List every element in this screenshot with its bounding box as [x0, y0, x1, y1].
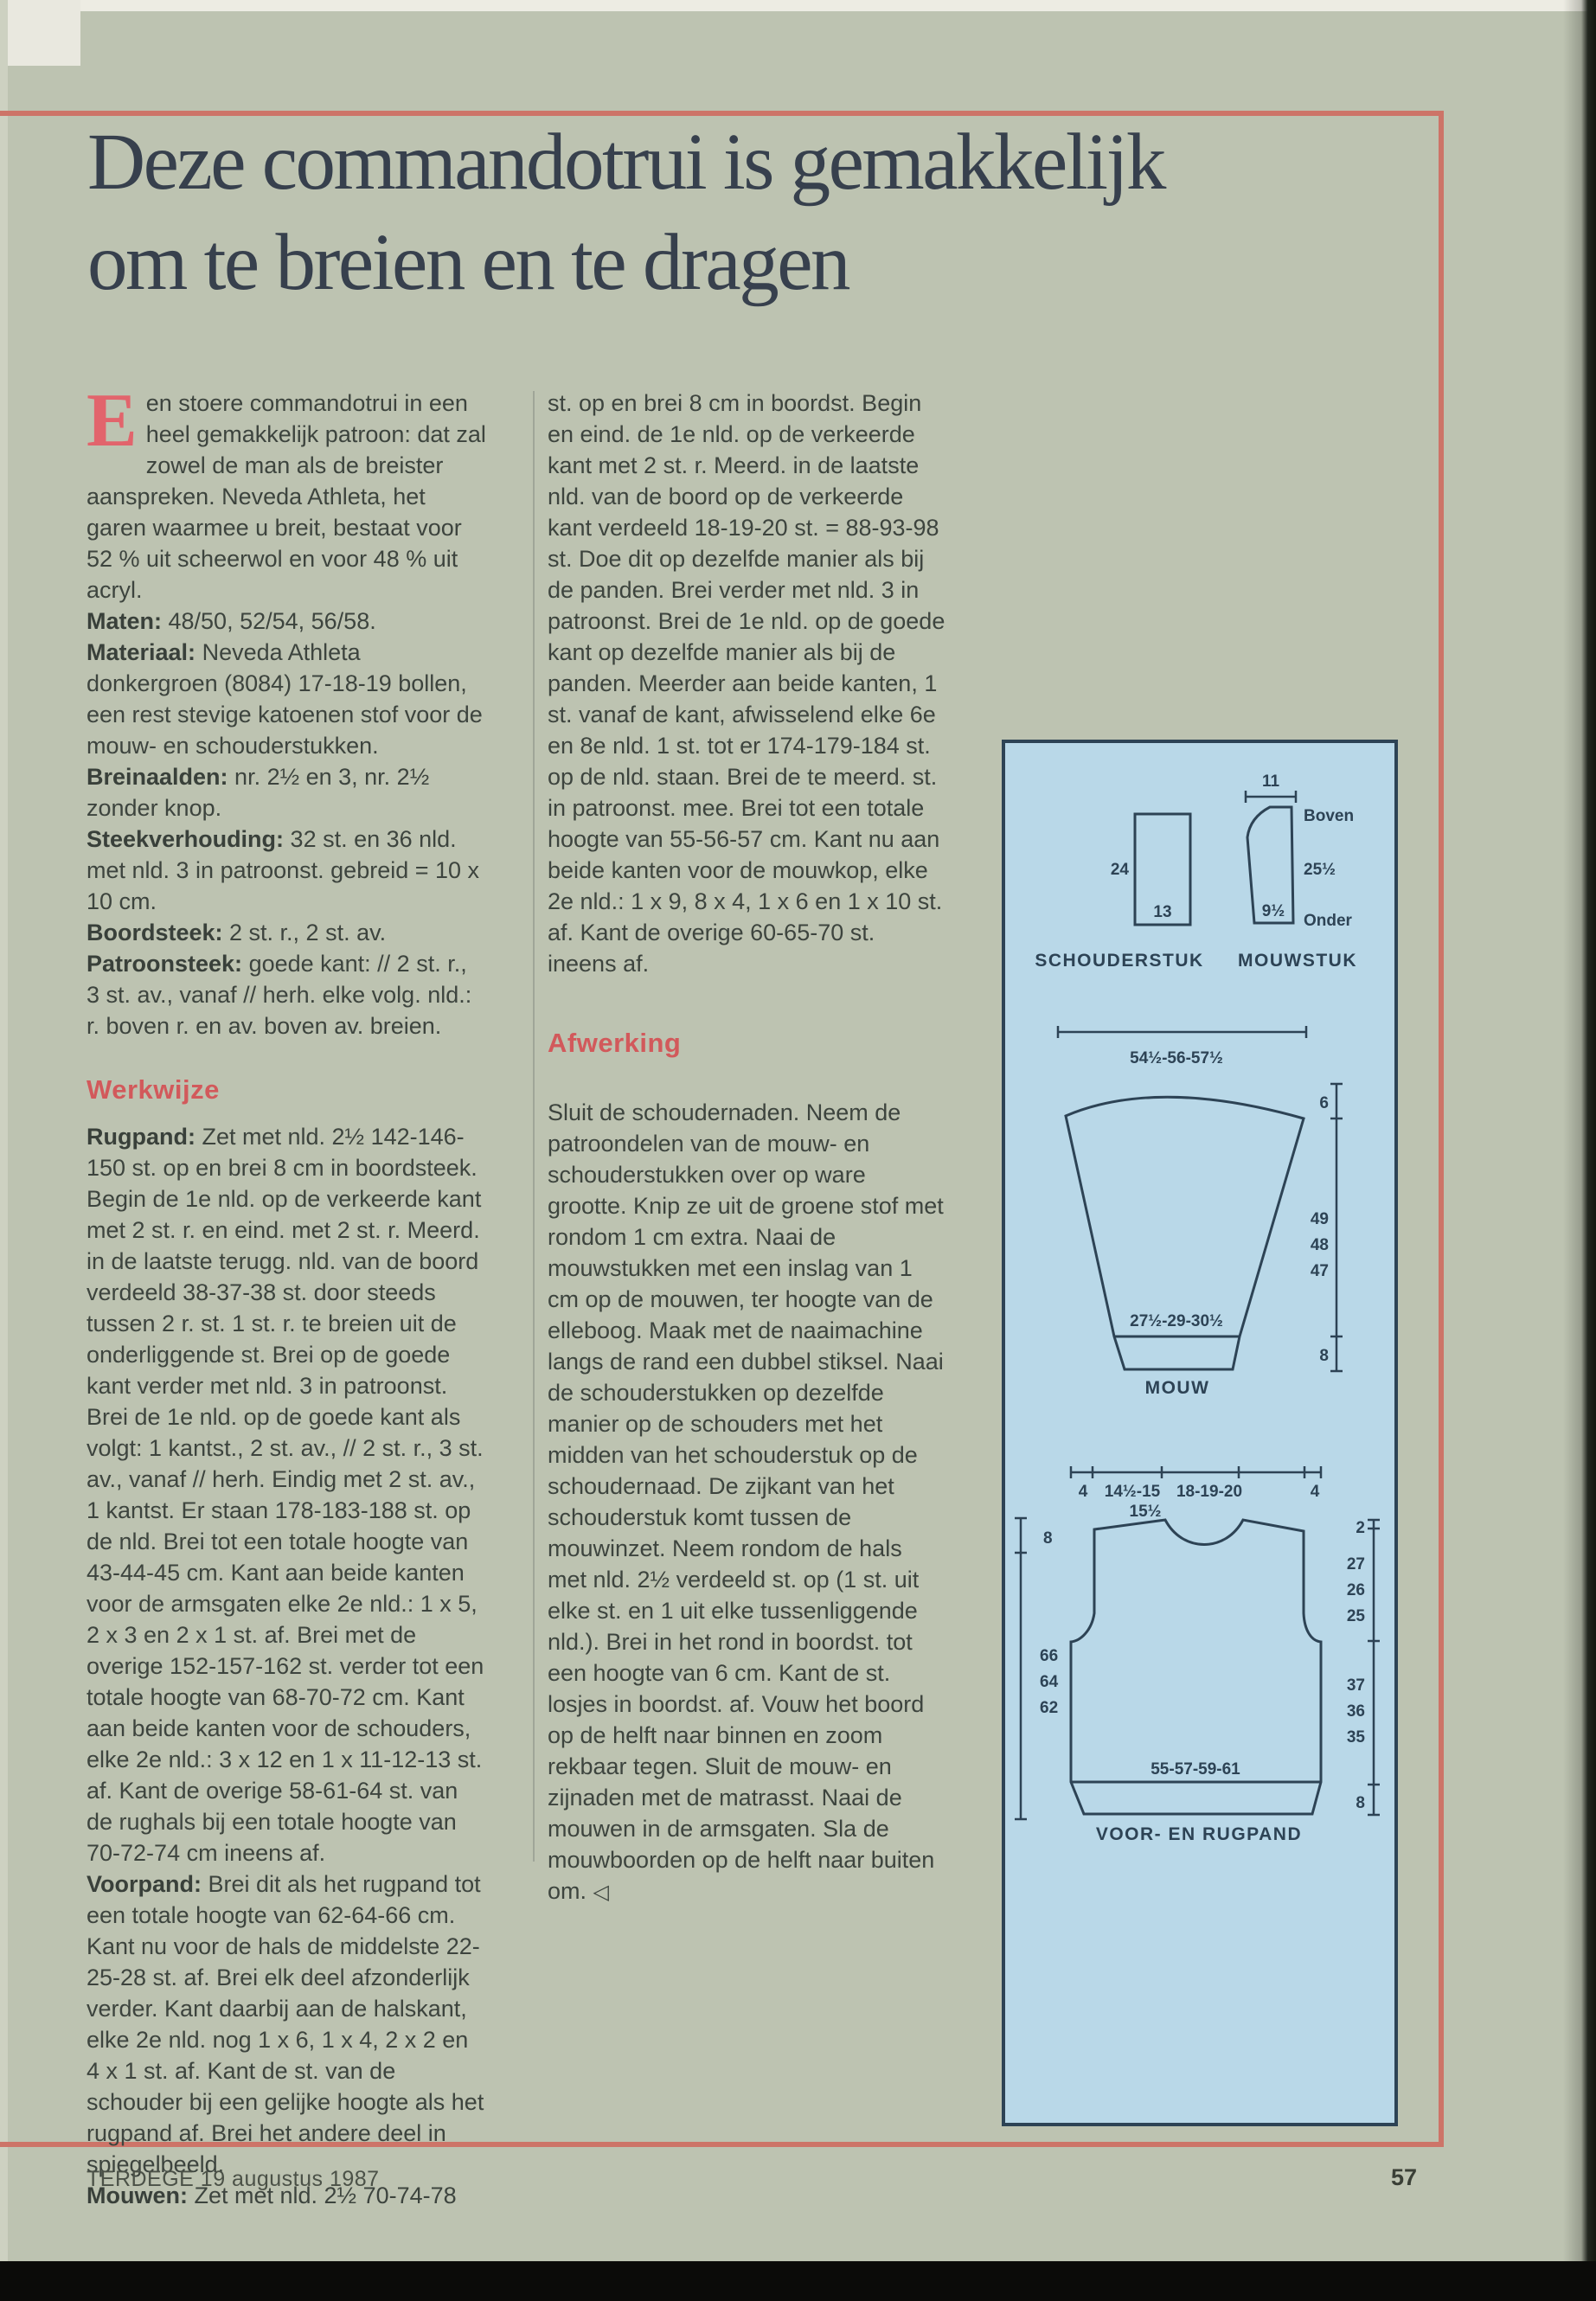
- page-title-line1: Deze commandotrui is gemakkelijk: [87, 112, 1385, 213]
- mouw-cuff-height-dim: 8: [1319, 1347, 1329, 1365]
- text-column-2: st. op en brei 8 cm in boordst. Begin en…: [548, 388, 947, 1908]
- spec-breinaalden: Breinaalden: nr. 2½ en 3, nr. 2½ zonder …: [87, 761, 486, 824]
- pand-rib-height-dim: 8: [1356, 1794, 1365, 1812]
- pand-body-height-dim-2: 64: [1040, 1673, 1059, 1691]
- pand-lower-height-dim-2: 36: [1347, 1702, 1365, 1721]
- mouwstuk-boven-label: Boven: [1304, 807, 1354, 825]
- pand-neck-dim: 18-19-20: [1176, 1483, 1242, 1501]
- pand-shoulder-dim-row2: 15½: [1130, 1503, 1162, 1521]
- mouw-length-dim-3: 47: [1311, 1262, 1329, 1280]
- pand-diagram: 4 14½-15 18-19-20 4 15½ 55-57-59-61 8 66…: [1015, 1466, 1380, 1844]
- scan-corner-top-left: [0, 0, 80, 66]
- spec-maten: Maten: 48/50, 52/54, 56/58.: [87, 606, 486, 637]
- para-voorpand: Voorpand: Brei dit als het rugpand tot e…: [87, 1868, 486, 2180]
- mouwstuk-onder-label: Onder: [1304, 912, 1353, 930]
- frame-rule-right: [1439, 111, 1444, 2147]
- pand-armhole-height-dim: 8: [1043, 1529, 1053, 1548]
- spec-steekverhouding: Steekverhouding: 32 st. en 36 nld. met n…: [87, 824, 486, 917]
- spec-patroonsteek: Patroonsteek: goede kant: // 2 st. r., 3…: [87, 948, 486, 1042]
- heading-werkwijze: Werkwijze: [87, 1074, 486, 1106]
- para-rugpand: Rugpand: Zet met nld. 2½ 142-146-150 st.…: [87, 1121, 486, 1868]
- page-number: 57: [1391, 2164, 1417, 2191]
- scan-edge-right: [1563, 0, 1596, 2301]
- intro-text: en stoere commandotrui in een heel gemak…: [87, 390, 486, 603]
- page-title: Deze commandotrui is gemakkelijk om te b…: [87, 112, 1385, 313]
- mouwstuk-diagram: 11 Boven 25½ 9½ Onder MOUWSTUK: [1238, 772, 1357, 971]
- pand-label: VOOR- EN RUGPAND: [1096, 1824, 1302, 1844]
- mouw-length-dim-1: 49: [1311, 1210, 1329, 1228]
- pand-body-height-dim-3: 62: [1040, 1699, 1058, 1717]
- mouwstuk-label: MOUWSTUK: [1238, 951, 1357, 971]
- pattern-diagram-panel: 24 13 SCHOUDERSTUK 11 Boven 25½ 9½ Onder…: [1002, 740, 1398, 2126]
- drop-cap: E: [87, 391, 138, 452]
- pand-shoulder-dim: 14½-15: [1105, 1483, 1161, 1501]
- pand-neck-depth-dim: 2: [1356, 1519, 1365, 1537]
- spec-label: Boordsteek:: [87, 920, 223, 945]
- pand-edge-left-dim: 4: [1079, 1483, 1088, 1501]
- pand-yoke-height-dim-2: 26: [1347, 1581, 1365, 1599]
- schouderstuk-bottom-dim: 13: [1153, 903, 1171, 921]
- spec-text: 48/50, 52/54, 56/58.: [162, 608, 376, 634]
- scan-edge-left: [0, 0, 8, 2261]
- column-divider: [533, 391, 535, 1862]
- magazine-page: Deze commandotrui is gemakkelijk om te b…: [0, 0, 1596, 2301]
- pand-lower-height-dim-3: 35: [1347, 1728, 1366, 1747]
- mouwstuk-side-dim: 25½: [1304, 861, 1336, 879]
- para-text: Zet met nld. 2½ 142-146-150 st. op en br…: [87, 1124, 484, 1866]
- para-afwerking: Sluit de schoudernaden. Neem de patroond…: [548, 1097, 947, 1908]
- para-mouwen-vervolg: st. op en brei 8 cm in boordst. Begin en…: [548, 388, 947, 979]
- spec-text: 2 st. r., 2 st. av.: [223, 920, 387, 945]
- para-label: Rugpand:: [87, 1124, 195, 1150]
- pand-yoke-height-dim-3: 25: [1347, 1607, 1366, 1625]
- scan-edge-bottom: [0, 2261, 1596, 2301]
- para-label: Voorpand:: [87, 1871, 202, 1897]
- mouw-label: MOUW: [1145, 1378, 1210, 1398]
- mouw-diagram: 54½-56-57½ 27½-29-30½ 6 49 48 47 8 MOUW: [1058, 1026, 1343, 1398]
- mouw-cap-height-dim: 6: [1319, 1094, 1329, 1112]
- mouwstuk-top-dim: 11: [1262, 772, 1280, 791]
- pand-edge-right-dim: 4: [1311, 1483, 1320, 1501]
- spec-label: Maten:: [87, 608, 162, 634]
- spec-label: Breinaalden:: [87, 764, 228, 790]
- intro-paragraph: E en stoere commandotrui in een heel gem…: [87, 388, 486, 606]
- schouderstuk-diagram: 24 13 SCHOUDERSTUK: [1035, 814, 1203, 971]
- pand-lower-height-dim-1: 37: [1347, 1676, 1365, 1695]
- spec-label: Patroonsteek:: [87, 951, 242, 977]
- afwerking-text: Sluit de schoudernaden. Neem de patroond…: [548, 1099, 944, 1904]
- pand-yoke-height-dim-1: 27: [1347, 1555, 1365, 1574]
- heading-afwerking: Afwerking: [548, 1028, 947, 1059]
- magazine-credit: TERDEGE 19 augustus 1987: [87, 2167, 380, 2192]
- mouwstuk-bottom-dim: 9½: [1262, 902, 1285, 920]
- schouderstuk-side-dim: 24: [1111, 861, 1130, 879]
- mouw-length-dim-2: 48: [1311, 1236, 1329, 1254]
- pand-body-height-dim-1: 66: [1040, 1647, 1058, 1665]
- knitting-schematics: 24 13 SCHOUDERSTUK 11 Boven 25½ 9½ Onder…: [1005, 743, 1394, 2123]
- para-text: Brei dit als het rugpand tot een totale …: [87, 1871, 484, 2177]
- spec-boordsteek: Boordsteek: 2 st. r., 2 st. av.: [87, 917, 486, 948]
- schouderstuk-label: SCHOUDERSTUK: [1035, 951, 1203, 971]
- page-title-line2: om te breien en te dragen: [87, 213, 1385, 313]
- mouw-top-width-dim: 54½-56-57½: [1130, 1049, 1223, 1067]
- text-column-1: E en stoere commandotrui in een heel gem…: [87, 388, 486, 2211]
- pand-bottom-width-dim: 55-57-59-61: [1151, 1760, 1240, 1779]
- mouw-cuff-width-dim: 27½-29-30½: [1130, 1312, 1223, 1330]
- article-end-icon: ◁: [593, 1881, 609, 1904]
- spec-materiaal: Materiaal: Neveda Athleta donkergroen (8…: [87, 637, 486, 761]
- scan-edge-top: [0, 0, 1596, 11]
- spec-label: Materiaal:: [87, 639, 195, 665]
- spec-label: Steekverhouding:: [87, 826, 284, 852]
